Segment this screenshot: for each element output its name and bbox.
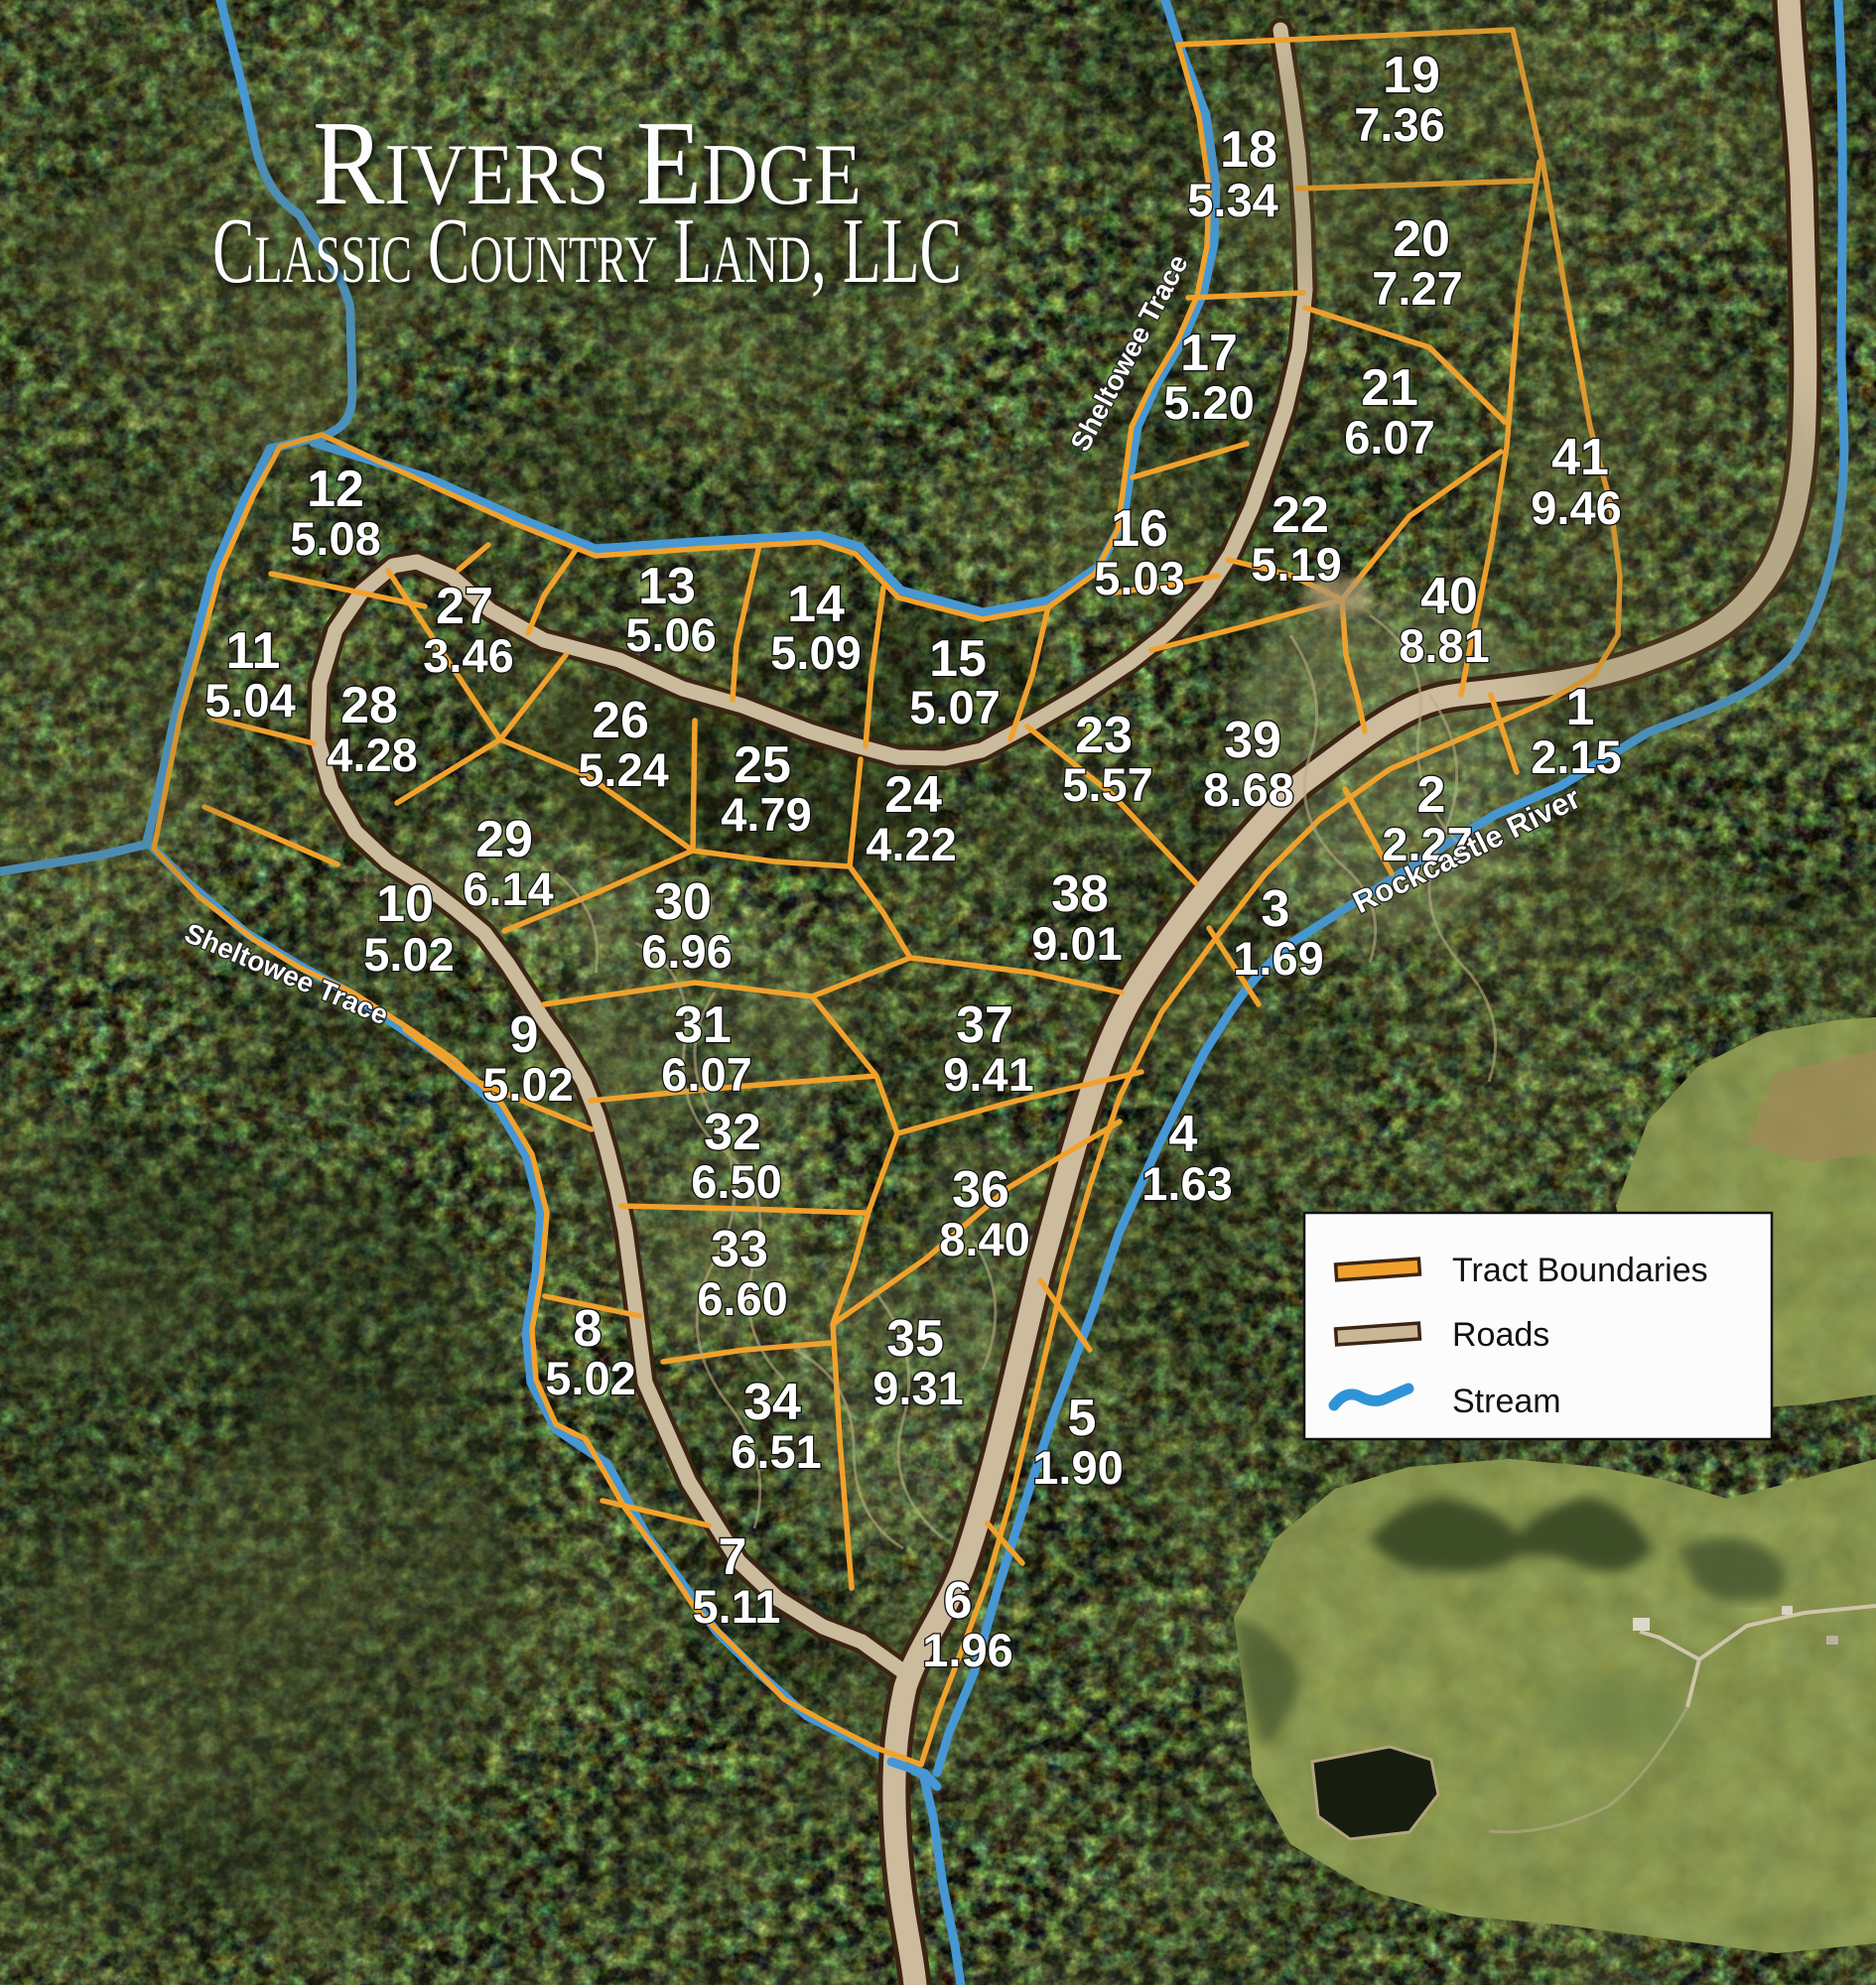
svg-text:7.27: 7.27 <box>1372 262 1462 315</box>
svg-text:4.79: 4.79 <box>721 788 811 841</box>
svg-text:7.36: 7.36 <box>1354 98 1444 151</box>
svg-text:6.07: 6.07 <box>1344 411 1434 463</box>
svg-text:38: 38 <box>1051 865 1109 923</box>
svg-text:41: 41 <box>1551 429 1609 486</box>
svg-text:1.63: 1.63 <box>1141 1157 1232 1210</box>
svg-text:13: 13 <box>638 558 696 615</box>
svg-text:9.41: 9.41 <box>943 1048 1033 1101</box>
svg-text:19: 19 <box>1383 47 1440 104</box>
svg-text:Tract Boundaries: Tract Boundaries <box>1452 1252 1708 1289</box>
svg-text:5.02: 5.02 <box>482 1058 573 1111</box>
svg-text:36: 36 <box>952 1161 1009 1219</box>
svg-text:5.19: 5.19 <box>1251 538 1341 591</box>
svg-text:23: 23 <box>1075 707 1133 764</box>
svg-text:14: 14 <box>787 576 845 633</box>
svg-text:2.15: 2.15 <box>1531 730 1621 783</box>
svg-text:18: 18 <box>1220 121 1277 179</box>
svg-text:27: 27 <box>436 578 493 635</box>
svg-text:1.90: 1.90 <box>1032 1441 1123 1494</box>
svg-text:6.51: 6.51 <box>731 1425 821 1478</box>
svg-text:9.31: 9.31 <box>872 1362 963 1414</box>
svg-text:21: 21 <box>1361 359 1418 417</box>
svg-text:3: 3 <box>1262 880 1290 938</box>
svg-text:8: 8 <box>574 1300 603 1358</box>
svg-text:5.20: 5.20 <box>1163 376 1254 429</box>
svg-text:12: 12 <box>307 461 364 518</box>
svg-text:26: 26 <box>592 692 649 749</box>
svg-text:6.60: 6.60 <box>697 1272 787 1325</box>
svg-text:5.02: 5.02 <box>545 1352 635 1404</box>
svg-text:5.07: 5.07 <box>909 681 1000 733</box>
svg-text:5.08: 5.08 <box>290 512 380 565</box>
svg-text:22: 22 <box>1272 486 1329 544</box>
svg-text:37: 37 <box>956 996 1013 1054</box>
svg-text:32: 32 <box>704 1104 761 1161</box>
svg-text:25: 25 <box>734 736 791 794</box>
svg-text:31: 31 <box>674 996 732 1054</box>
svg-text:17: 17 <box>1180 325 1238 382</box>
svg-text:9.46: 9.46 <box>1531 481 1621 534</box>
svg-text:6.96: 6.96 <box>641 925 732 978</box>
svg-text:5.06: 5.06 <box>625 608 716 661</box>
svg-text:1: 1 <box>1566 679 1595 736</box>
svg-text:2: 2 <box>1417 766 1446 824</box>
svg-text:8.81: 8.81 <box>1399 619 1489 672</box>
svg-text:6.50: 6.50 <box>691 1155 781 1208</box>
svg-text:9: 9 <box>510 1006 539 1064</box>
svg-text:6.14: 6.14 <box>463 862 553 915</box>
svg-text:29: 29 <box>475 811 533 868</box>
svg-text:15: 15 <box>929 630 987 688</box>
svg-text:1.96: 1.96 <box>922 1624 1012 1676</box>
svg-text:34: 34 <box>743 1374 801 1431</box>
svg-text:35: 35 <box>886 1310 944 1368</box>
svg-text:11: 11 <box>226 622 281 680</box>
svg-text:5.11: 5.11 <box>693 1580 781 1633</box>
svg-text:Stream: Stream <box>1452 1383 1561 1420</box>
svg-text:Roads: Roads <box>1452 1316 1549 1354</box>
svg-text:9.01: 9.01 <box>1031 917 1122 970</box>
svg-text:4: 4 <box>1169 1106 1198 1163</box>
svg-text:40: 40 <box>1420 568 1478 625</box>
svg-text:39: 39 <box>1224 712 1281 769</box>
svg-text:5.09: 5.09 <box>770 626 861 679</box>
svg-text:5.57: 5.57 <box>1062 758 1152 811</box>
svg-text:5.34: 5.34 <box>1187 174 1277 226</box>
svg-text:10: 10 <box>376 875 434 933</box>
svg-text:5.24: 5.24 <box>578 743 668 796</box>
svg-text:6.07: 6.07 <box>661 1048 751 1101</box>
svg-text:4.22: 4.22 <box>866 818 956 870</box>
svg-text:7: 7 <box>719 1528 747 1586</box>
svg-text:4.28: 4.28 <box>327 728 417 781</box>
svg-text:6: 6 <box>944 1572 973 1630</box>
svg-text:16: 16 <box>1111 500 1168 558</box>
svg-text:8.40: 8.40 <box>939 1213 1029 1265</box>
svg-text:8.68: 8.68 <box>1203 763 1293 816</box>
svg-text:28: 28 <box>340 677 398 734</box>
svg-text:1.69: 1.69 <box>1233 932 1323 985</box>
svg-text:33: 33 <box>711 1221 768 1278</box>
svg-text:5.03: 5.03 <box>1094 552 1184 604</box>
svg-text:30: 30 <box>654 873 712 931</box>
svg-text:5: 5 <box>1068 1389 1097 1447</box>
svg-text:5.02: 5.02 <box>363 928 454 981</box>
svg-text:5.04: 5.04 <box>204 674 295 727</box>
svg-text:24: 24 <box>884 766 942 824</box>
svg-text:20: 20 <box>1393 210 1450 268</box>
svg-text:3.46: 3.46 <box>423 629 513 682</box>
